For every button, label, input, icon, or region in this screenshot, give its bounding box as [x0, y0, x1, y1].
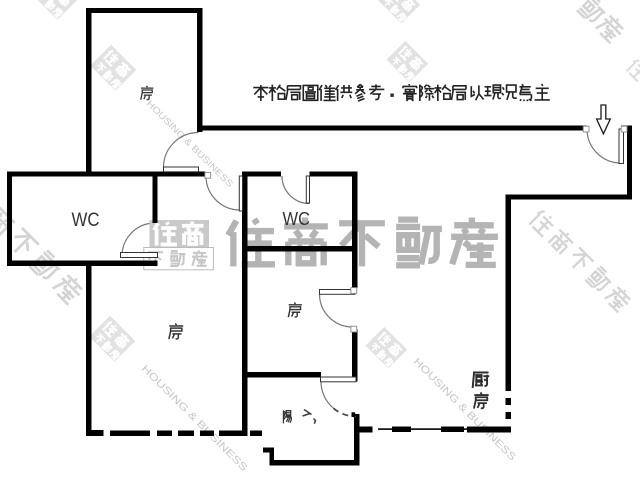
- svg-text:WC: WC: [72, 210, 100, 231]
- svg-text:WC: WC: [283, 208, 311, 229]
